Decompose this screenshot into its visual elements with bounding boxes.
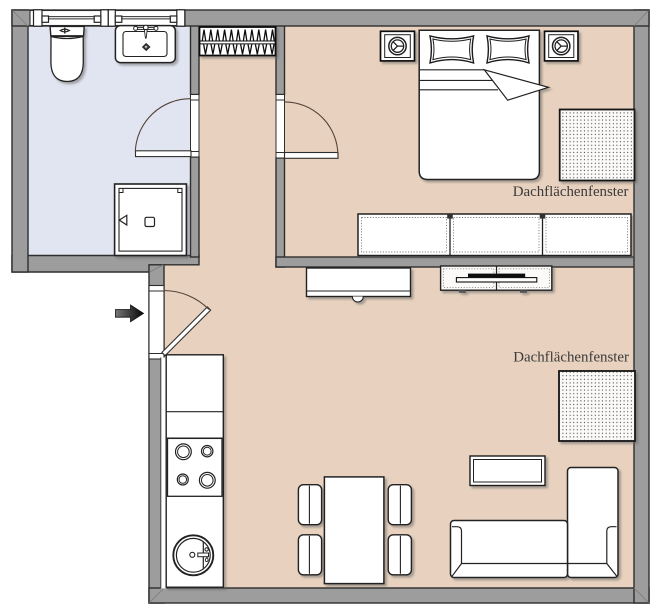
svg-text:Dachflächenfenster: Dachflächenfenster <box>513 184 629 200</box>
svg-text:Dachflächenfenster: Dachflächenfenster <box>513 350 629 366</box>
